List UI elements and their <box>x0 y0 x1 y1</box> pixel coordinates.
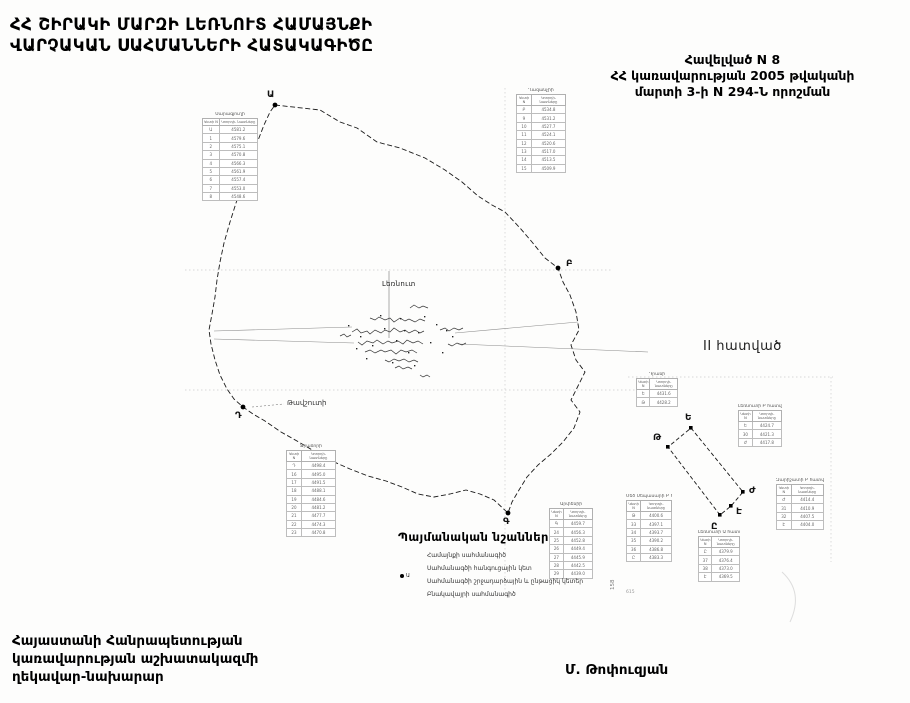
section2-nodes <box>666 426 745 517</box>
neighbor-community-name: Թավշուտի <box>287 399 327 407</box>
table-row: 214477.7 <box>287 512 336 520</box>
section2-point-label-zh: Ժ <box>749 486 756 496</box>
boundary-point-label-a: Ա <box>267 90 274 100</box>
table-cell: 4513.5 <box>531 156 565 164</box>
coordinate-table-lernut-b: Լեռնուտի Բ հատված Կետի NԿոորդի- նատներըԵ… <box>738 404 782 447</box>
table-cell: Ժ <box>777 496 792 504</box>
coordinate-table-grid: Կետի NԿոորդի- նատներըԹ4400.6334397.13443… <box>626 500 672 562</box>
coordinate-table-grid: Կետի NԿոորդի- նատներըԵ4431.6Թ4428.2 <box>636 378 678 407</box>
table-header-cell: Կոորդի- նատները <box>650 379 678 390</box>
table-cell: 4498.4 <box>301 462 335 470</box>
table-cell: 4553.0 <box>219 184 257 192</box>
table-header-cell: Կոորդի- նատները <box>712 537 740 548</box>
document-title: ՀՀ ՇԻՐԱԿԻ ՄԱՐԶԻ ԼԵՌՆՈՒՏ ՀԱՄԱՅՆՔԻ ՎԱՐՉԱԿԱ… <box>10 14 480 56</box>
table-row: Դ4498.4 <box>287 462 336 470</box>
coordinate-table-drani: Դրանի Կետի NԿոորդի- նատներըԵ4431.6Թ4428.… <box>636 372 678 407</box>
settlement-specks <box>348 315 453 366</box>
coordinate-table-zarishat-b: Զարիշատի Բ հատված Կետի NԿոորդի- նատներըԺ… <box>776 478 824 530</box>
table-row: 54561.9 <box>203 167 258 175</box>
table-cell: 4421.3 <box>752 430 781 438</box>
table-header-cell: Կետի N <box>517 95 532 106</box>
table-header-cell: Կետի N <box>627 501 641 512</box>
coordinate-table-ghazanchi: Ղազանչիի Կետի NԿոորդի- նատներըԲ4534.8945… <box>516 88 566 173</box>
settlement-area <box>340 305 466 377</box>
table-cell: 4393.7 <box>641 528 672 536</box>
table-cell: 17 <box>287 478 302 486</box>
table-cell: 10 <box>517 122 532 130</box>
table-cell: 6 <box>203 176 220 184</box>
document-title-line1: ՀՀ ՇԻՐԱԿԻ ՄԱՐԶԻ ԼԵՌՆՈՒՏ ՀԱՄԱՅՆՔԻ <box>10 14 480 35</box>
table-row: 84548.6 <box>203 193 258 201</box>
table-row: 184488.1 <box>287 487 336 495</box>
table-row: Ե4424.7 <box>739 422 782 430</box>
table-cell: 36 <box>627 545 641 553</box>
table-row: Թ4428.2 <box>637 398 678 406</box>
coordinate-table-title: Սարագյուղի <box>202 112 258 117</box>
section2-point-label-e: Ե <box>685 413 692 423</box>
node-point-letter: Ա <box>406 573 410 579</box>
table-cell: Ե <box>637 390 650 398</box>
table-row: 34570.8 <box>203 151 258 159</box>
table-cell: 19 <box>287 495 302 503</box>
table-row: Թ4400.6 <box>627 512 672 520</box>
coordinate-table-title: Լեռնուտի Բ հատված <box>738 404 782 409</box>
neighbor-leader-line <box>252 404 284 407</box>
table-header-cell: Կոորդի- նատները <box>531 95 565 106</box>
coordinate-table-title: Մեծ Սեպասարի Բ հատված <box>626 494 672 499</box>
table-header-cell: Կոորդի- նատները <box>791 485 823 496</box>
table-row: Ը4379.9 <box>699 548 740 556</box>
table-cell: 7 <box>203 184 220 192</box>
table-cell: 4 <box>203 159 220 167</box>
table-cell: Թ <box>637 398 650 406</box>
legend-item-label: Համայնքի սահմանագիծ <box>427 552 506 559</box>
annex-reference: Հավելված N 8 ՀՀ կառավարության 2005 թվակա… <box>560 52 905 100</box>
node-point-icon: Ա <box>400 565 420 584</box>
table-cell: Է <box>699 573 712 581</box>
table-cell: 4527.7 <box>531 122 565 130</box>
coordinate-table-grid: Կետի NԿոորդի- նատներըԸ4379.9374376.43843… <box>698 536 740 582</box>
coordinate-table-saragyugh: Սարագյուղի Կետի NԿոորդի- նատներըԱ4581.21… <box>202 112 258 201</box>
coordinate-table-grid: Կետի NԿոորդի- նատներըԲ4534.894531.210452… <box>516 94 566 173</box>
table-cell: 4561.9 <box>219 167 257 175</box>
table-cell: 4531.2 <box>531 114 565 122</box>
table-header-cell: Կետի N <box>699 537 712 548</box>
table-cell: 4424.7 <box>752 422 781 430</box>
coordinate-table-title: Արփենիի <box>549 502 593 507</box>
table-header-cell: Կետի N <box>550 509 564 520</box>
table-header-cell: Կոորդի- նատները <box>752 411 781 422</box>
coordinate-table-grid: Կետի NԿոորդի- նատներըԺ4414.4314410.93244… <box>776 484 824 530</box>
table-row: 124520.6 <box>517 139 566 147</box>
table-cell: 30 <box>739 430 753 438</box>
annex-line3: մարտի 3-ի N 294-Ն որոշման <box>560 84 905 100</box>
table-row: 14579.6 <box>203 134 258 142</box>
table-row: Է4404.0 <box>777 521 824 529</box>
table-header-cell: Կոորդի- նատները <box>641 501 672 512</box>
table-cell: 23 <box>287 529 302 537</box>
table-cell: 4470.8 <box>301 529 335 537</box>
table-row: 64557.4 <box>203 176 258 184</box>
table-cell: 4386.8 <box>641 545 672 553</box>
coordinate-table-grid: Կետի NԿոորդի- նատներըԴ4498.4164495.01744… <box>286 450 336 537</box>
table-cell: 3 <box>203 151 220 159</box>
table-row: Ժ4417.8 <box>739 438 782 446</box>
table-header-cell: Կետի N <box>287 451 302 462</box>
table-cell: 4581.2 <box>219 126 257 134</box>
table-header-cell: Կետի N <box>739 411 753 422</box>
table-cell: 2 <box>203 142 220 150</box>
legend: Պայմանական նշաններ Համայնքի սահմանագիծ Ա… <box>398 530 608 610</box>
table-row: Ը4383.3 <box>627 553 672 561</box>
table-cell: 4557.4 <box>219 176 257 184</box>
coordinate-table-grid: Կետի NԿոորդի- նատներըԵ4424.7304421.3Ժ441… <box>738 410 782 447</box>
scan-artifact-number-1: 158 <box>610 580 616 591</box>
table-cell: 35 <box>627 537 641 545</box>
table-row: 174491.5 <box>287 478 336 486</box>
table-cell: 4579.6 <box>219 134 257 142</box>
table-row: 24575.1 <box>203 142 258 150</box>
coordinate-table-lernut-a: Լեռնուտի Ա հատված Կետի NԿոորդի- նատներըԸ… <box>698 530 740 582</box>
table-cell: 37 <box>699 556 712 564</box>
signature-line3: ղեկավար-նախարար <box>12 668 342 686</box>
table-cell: Ե <box>739 422 753 430</box>
coordinate-table-jradzor: Ջրաձորի Կետի NԿոորդի- նատներըԴ4498.41644… <box>286 444 336 537</box>
legend-item-label: Բնակավայրի սահմանագիծ <box>427 591 516 598</box>
table-cell: Գ <box>550 520 564 528</box>
legend-item-label: Սահմանագծի հանգուցային կետ <box>427 565 532 572</box>
table-cell: 4566.3 <box>219 159 257 167</box>
table-row: 334397.1 <box>627 520 672 528</box>
table-row: 234470.8 <box>287 529 336 537</box>
table-row: 44566.3 <box>203 159 258 167</box>
boundary-point-label-b: Բ <box>566 259 573 269</box>
signature-line1: Հայաստանի Հանրապետության <box>12 632 342 650</box>
table-row: 324407.5 <box>777 512 824 520</box>
table-row: 154509.9 <box>517 164 566 172</box>
table-cell: 9 <box>517 114 532 122</box>
table-row: 74553.0 <box>203 184 258 192</box>
table-cell: Ժ <box>739 438 753 446</box>
table-row: 224474.3 <box>287 520 336 528</box>
table-cell: 4407.5 <box>791 512 823 520</box>
table-row: 104527.7 <box>517 122 566 130</box>
table-row: 144513.5 <box>517 156 566 164</box>
table-row: 204481.2 <box>287 503 336 511</box>
table-cell: 4428.2 <box>650 398 678 406</box>
table-cell: 13 <box>517 147 532 155</box>
table-header-cell: Կետի N <box>203 119 220 126</box>
road-lines <box>214 271 648 352</box>
table-cell: 11 <box>517 131 532 139</box>
table-row: 354390.2 <box>627 537 672 545</box>
table-cell: 8 <box>203 193 220 201</box>
table-cell: 4431.6 <box>650 390 678 398</box>
table-cell: Բ <box>517 106 532 114</box>
document-title-line2: ՎԱՐՉԱԿԱՆ ՍԱՀՄԱՆՆԵՐԻ ՀԱՏԱԿԱԳԻԾԸ <box>10 35 480 56</box>
table-row: Գ4459.7 <box>550 520 593 528</box>
table-row: 314410.9 <box>777 504 824 512</box>
table-row: Բ4534.8 <box>517 106 566 114</box>
table-row: 384373.0 <box>699 564 740 572</box>
table-cell: 32 <box>777 512 792 520</box>
scan-artifact-number-2: 615 <box>626 590 635 595</box>
signature-block: Հայաստանի Հանրապետության կառավարության ա… <box>12 632 342 686</box>
section2-point-label-t: Թ <box>653 433 661 443</box>
table-cell: 4404.0 <box>791 521 823 529</box>
table-header-cell: Կոորդի- նատները <box>219 119 257 126</box>
table-row: 194484.6 <box>287 495 336 503</box>
table-cell: 4517.0 <box>531 147 565 155</box>
table-cell: 4376.4 <box>712 556 740 564</box>
table-cell: 4417.8 <box>752 438 781 446</box>
table-cell: 4509.9 <box>531 164 565 172</box>
table-cell: 4575.1 <box>219 142 257 150</box>
signer-name: Մ. Թոփուզյան <box>565 662 668 678</box>
section2-boundary <box>668 428 743 515</box>
table-row: 364386.8 <box>627 545 672 553</box>
table-cell: 4379.9 <box>712 548 740 556</box>
table-cell: 4477.7 <box>301 512 335 520</box>
table-row: Ա4581.2 <box>203 126 258 134</box>
table-row: 344393.7 <box>627 528 672 536</box>
table-cell: Թ <box>627 512 641 520</box>
table-cell: 4484.6 <box>301 495 335 503</box>
table-row: Ե4431.6 <box>637 390 678 398</box>
boundary-point-label-d: Դ <box>235 411 242 421</box>
table-cell: 1 <box>203 134 220 142</box>
table-cell: 4488.1 <box>301 487 335 495</box>
table-cell: 4524.1 <box>531 131 565 139</box>
annex-line1: Հավելված N 8 <box>560 52 905 68</box>
coordinate-table-title: Զարիշատի Բ հատված <box>776 478 824 483</box>
table-cell: 22 <box>287 520 302 528</box>
table-cell: 21 <box>287 512 302 520</box>
coordinate-table-title: Ղազանչիի <box>516 88 566 93</box>
table-cell: 4459.7 <box>563 520 592 528</box>
table-cell: 4474.3 <box>301 520 335 528</box>
table-cell: Ա <box>203 126 220 134</box>
table-cell: 4383.3 <box>641 553 672 561</box>
coordinate-table-title: Ջրաձորի <box>286 444 336 449</box>
table-cell: 4481.2 <box>301 503 335 511</box>
table-cell: 4397.1 <box>641 520 672 528</box>
table-cell: 4548.6 <box>219 193 257 201</box>
section2-heading: II հատված <box>703 339 782 354</box>
table-cell: 4491.5 <box>301 478 335 486</box>
table-cell: 4390.2 <box>641 537 672 545</box>
table-cell: 4495.0 <box>301 470 335 478</box>
table-row: 94531.2 <box>517 114 566 122</box>
table-header-cell: Կետի N <box>777 485 792 496</box>
settlement-name: Լեռնուտ <box>382 280 416 288</box>
table-cell: 15 <box>517 164 532 172</box>
table-cell: 4400.6 <box>641 512 672 520</box>
table-cell: Ը <box>627 553 641 561</box>
table-cell: 20 <box>287 503 302 511</box>
coordinate-table-grid: Կետի NԿոորդի- նատներըԱ4581.214579.624575… <box>202 118 258 201</box>
boundary-point-label-g: Գ <box>503 517 510 527</box>
table-header-cell: Կոորդի- նատները <box>563 509 592 520</box>
section2-point-label-ee: Է <box>736 507 742 517</box>
table-cell: 12 <box>517 139 532 147</box>
table-cell: Ը <box>699 548 712 556</box>
table-cell: Է <box>777 521 792 529</box>
table-row: 134517.0 <box>517 147 566 155</box>
coordinate-table-title: Դրանի <box>636 372 678 377</box>
table-row: Է4369.5 <box>699 573 740 581</box>
table-cell: 33 <box>627 520 641 528</box>
table-cell: 18 <box>287 487 302 495</box>
table-cell: 4373.0 <box>712 564 740 572</box>
legend-item-label: Սահմանագծի շրջադարձային և ընթացիկ կետեր <box>427 578 583 585</box>
table-header-cell: Կոորդի- նատները <box>301 451 335 462</box>
table-row: 164495.0 <box>287 470 336 478</box>
table-cell: 34 <box>627 528 641 536</box>
table-cell: 31 <box>777 504 792 512</box>
table-cell: Դ <box>287 462 302 470</box>
table-cell: 4570.8 <box>219 151 257 159</box>
annex-line2: ՀՀ կառավարության 2005 թվականի <box>560 68 905 84</box>
coordinate-table-title: Լեռնուտի Ա հատված <box>698 530 740 535</box>
table-cell: 4534.8 <box>531 106 565 114</box>
table-cell: 4410.9 <box>791 504 823 512</box>
signature-line2: կառավարության աշխատակազմի <box>12 650 342 668</box>
coordinate-table-mets-sepasar-b: Մեծ Սեպասարի Բ հատված Կետի NԿոորդի- նատն… <box>626 494 672 562</box>
table-header-cell: Կետի N <box>637 379 650 390</box>
table-cell: 4520.6 <box>531 139 565 147</box>
table-cell: 5 <box>203 167 220 175</box>
table-row: 374376.4 <box>699 556 740 564</box>
table-cell: 14 <box>517 156 532 164</box>
table-cell: 38 <box>699 564 712 572</box>
table-cell: 4414.4 <box>791 496 823 504</box>
table-row: 114524.1 <box>517 131 566 139</box>
legend-title: Պայմանական նշաններ <box>398 530 608 544</box>
table-cell: 4369.5 <box>712 573 740 581</box>
scan-artifact-curve <box>782 572 795 622</box>
table-row: 304421.3 <box>739 430 782 438</box>
scanned-map-page: { "title": { "line1": "ՀՀ ՇԻՐԱԿԻ ՄԱՐԶԻ Լ… <box>0 0 910 703</box>
table-row: Ժ4414.4 <box>777 496 824 504</box>
table-cell: 16 <box>287 470 302 478</box>
